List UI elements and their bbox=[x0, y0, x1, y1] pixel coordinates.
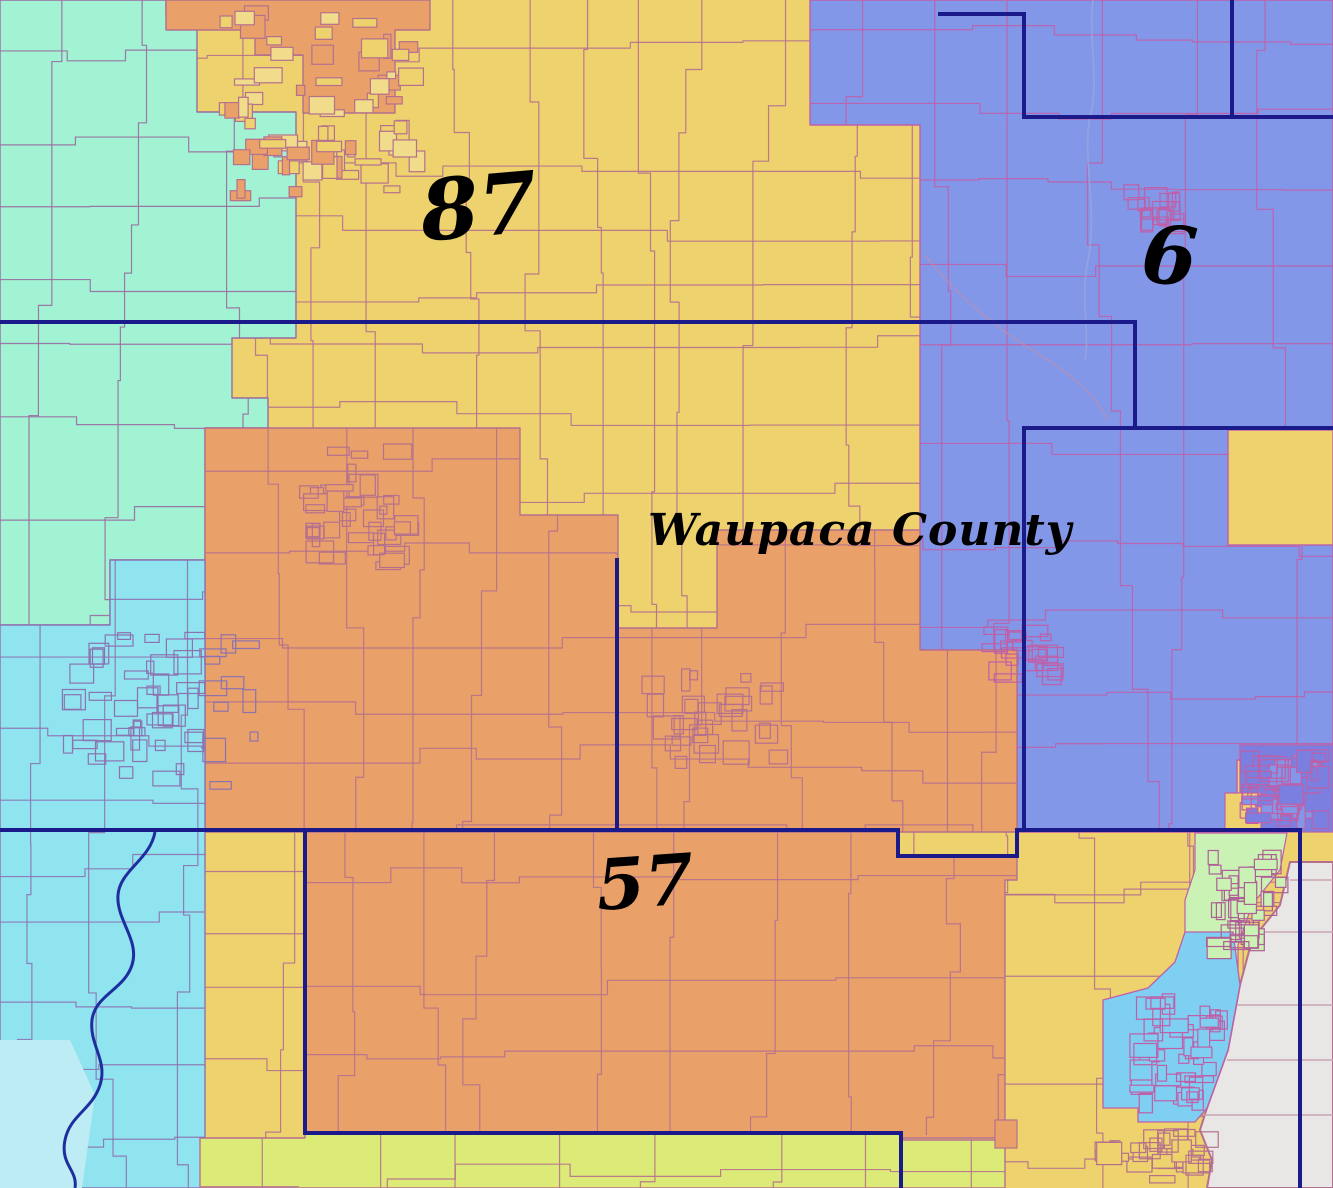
map-viewport[interactable]: 87 6 57 Waupaca County bbox=[0, 0, 1333, 1188]
map-canvas[interactable]: 87 6 57 Waupaca County bbox=[0, 0, 1333, 1188]
district-87-label: 87 bbox=[415, 152, 541, 261]
waupaca-county-label: Waupaca County bbox=[648, 505, 1075, 556]
region-yellow-patch-in-blue[interactable] bbox=[1228, 430, 1333, 545]
district-6-label: 6 bbox=[1138, 207, 1200, 305]
region-green-strip[interactable] bbox=[200, 1133, 1005, 1188]
region-small-orange-precinct bbox=[995, 1120, 1017, 1148]
district-57-label: 57 bbox=[593, 837, 696, 927]
